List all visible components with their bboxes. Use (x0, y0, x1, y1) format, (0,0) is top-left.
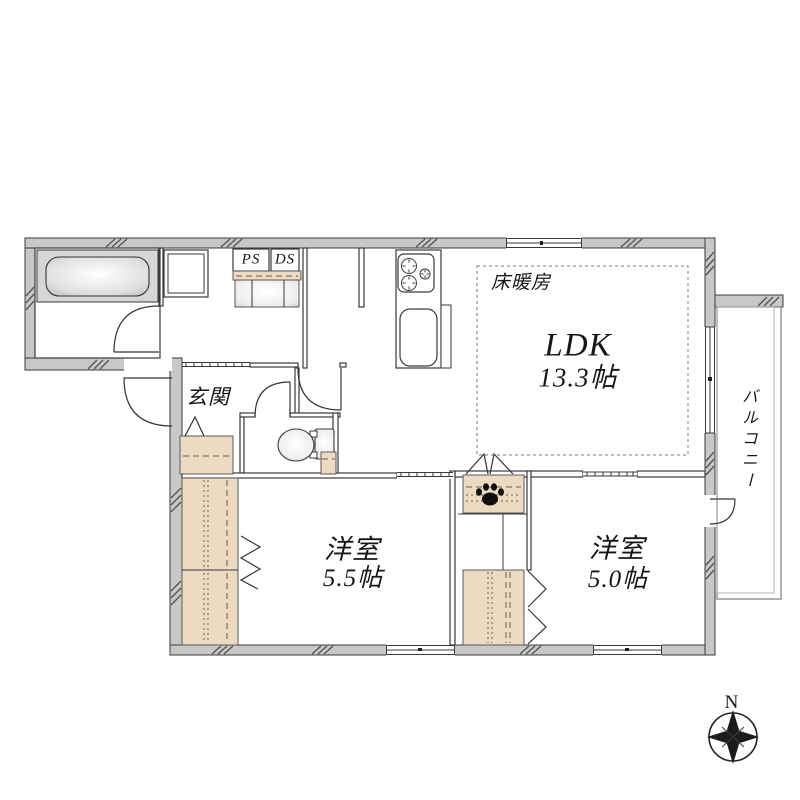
window-ldk-balcony (704, 327, 716, 433)
floor-heating-label: 床暖房 (491, 268, 551, 295)
compass-north-label: N (725, 692, 740, 714)
balcony-label: バルコニー (735, 388, 759, 493)
sliding-door-hall (182, 363, 250, 367)
toilet-door (255, 382, 290, 417)
floor-plan-drawing (0, 0, 800, 800)
floor-plan: PS DS 床暖房 LDK 13.3帖 玄関 洋室 5.5帖 洋室 5.0帖 バ… (0, 0, 800, 800)
kitchen-sink (400, 309, 437, 366)
washing-machine-pan (164, 250, 208, 297)
pet-cabinet (463, 454, 524, 513)
vanity-unit (233, 271, 301, 307)
ds-label: DS (275, 252, 295, 269)
ldk-area: 13.3帖 (538, 356, 617, 395)
window-bottom-right (593, 644, 662, 656)
bifold-door (528, 571, 546, 644)
shoe-cabinet (180, 436, 233, 474)
window-bottom-left (386, 644, 455, 656)
kitchen-stove (398, 254, 434, 292)
bathroom-door (114, 306, 159, 352)
bedroom-a-area: 5.5帖 (323, 558, 383, 594)
entrance-label: 玄関 (186, 381, 230, 411)
washroom-door (298, 368, 341, 410)
sliding-door-bedroom-a (397, 472, 453, 479)
ps-label: PS (242, 252, 261, 269)
compass-icon (708, 711, 758, 763)
entrance-step-marker (185, 417, 204, 436)
bedroom-b-area: 5.0帖 (588, 559, 648, 595)
bathtub (37, 250, 158, 302)
toilet (278, 429, 336, 474)
sliding-door-bedroom-b (583, 470, 637, 478)
closet-center (463, 570, 524, 645)
closet-left (182, 478, 238, 645)
accordion-door (241, 536, 260, 589)
window-top (506, 237, 582, 249)
entrance-door (124, 378, 172, 426)
